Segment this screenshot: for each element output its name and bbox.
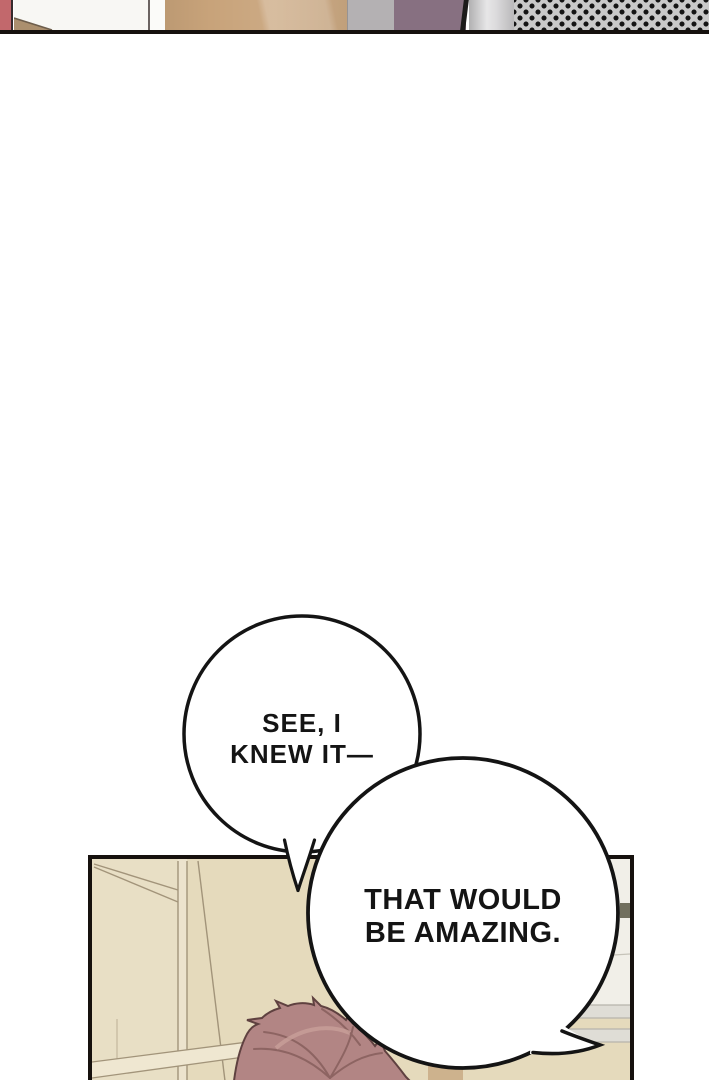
wall-light-left (92, 859, 178, 1080)
panel-border-bottom (0, 30, 709, 34)
gray-panel-segment (347, 0, 395, 30)
wall-light-strip (178, 859, 187, 1080)
bubble-2-line-1: THAT WOULD (293, 884, 633, 917)
comic-page: SEE, I KNEW IT— THAT WOULD BE AMAZING. (0, 0, 709, 1080)
bubble-1-text: SEE, I KNEW IT— (182, 708, 422, 770)
white-wall-segment (14, 0, 149, 30)
bubble-1-line-2: KNEW IT— (182, 739, 422, 770)
purple-drape-segment (394, 0, 466, 30)
previous-panel-strip (0, 0, 709, 34)
rose-wall-segment (0, 0, 13, 30)
halftone-pattern (514, 0, 709, 30)
bubble-1-line-1: SEE, I (182, 708, 422, 739)
silver-frame-segment (469, 0, 514, 30)
bubble-2-line-2: BE AMAZING. (293, 917, 633, 950)
bubble-2-text: THAT WOULD BE AMAZING. (293, 884, 633, 950)
wood-cabinet-segment (165, 0, 347, 30)
